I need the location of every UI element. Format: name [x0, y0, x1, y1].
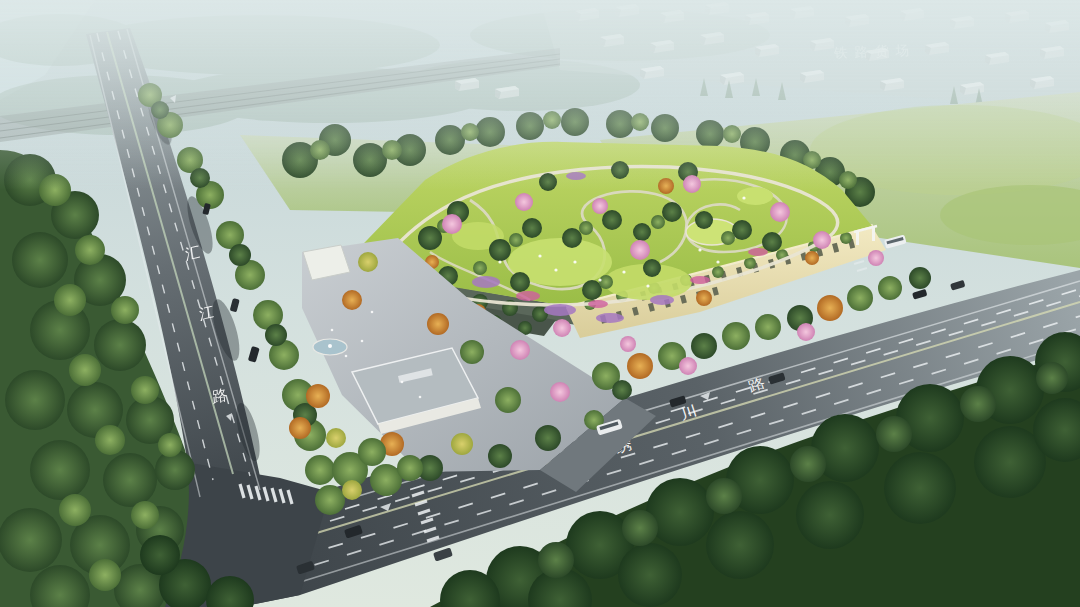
scene-canvas: 铁路货场 绣 川 路 — [0, 0, 1080, 607]
left-road-char-0: 汇 — [184, 242, 200, 263]
pond-fountain — [313, 339, 347, 355]
aerial-rendering: 铁路货场 绣 川 路 — [0, 0, 1080, 607]
left-road-char-1: 江 — [198, 302, 214, 323]
haze-overlay — [0, 0, 1080, 190]
left-road-char-2: 路 — [212, 385, 228, 406]
